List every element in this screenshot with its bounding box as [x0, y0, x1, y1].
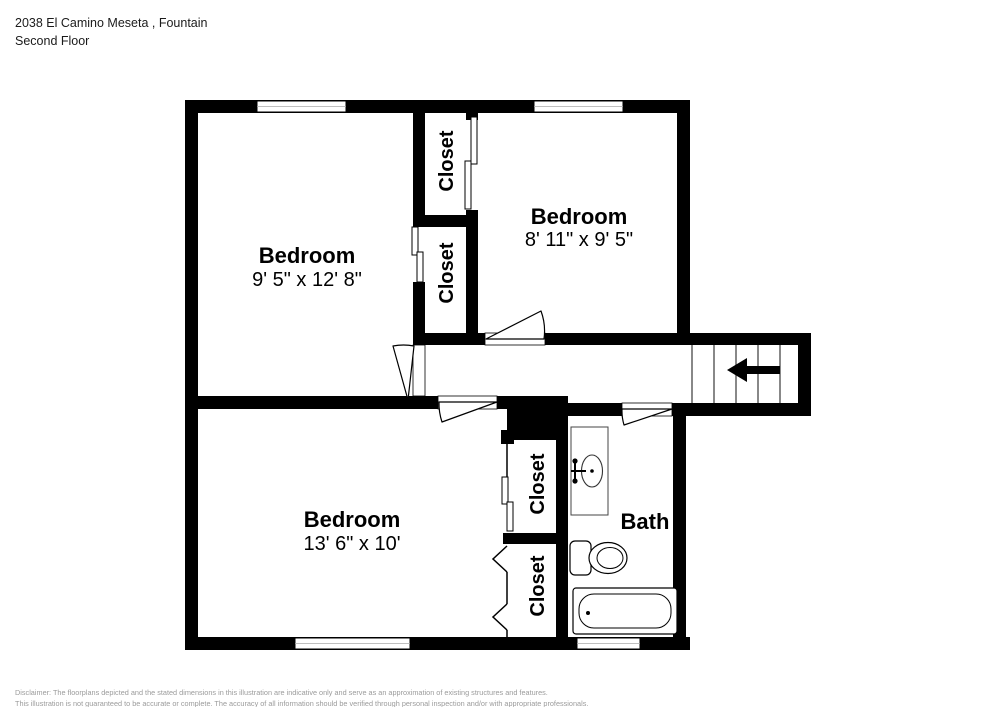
closet-label-top-lower: Closet	[436, 242, 458, 303]
wall-stairs-bottom	[672, 403, 811, 416]
room-label-bath: Bath	[621, 509, 670, 534]
toilet-icon	[570, 541, 627, 575]
wall-bath-top	[545, 403, 622, 416]
window-bedroom3-icon	[295, 638, 410, 649]
door-swing-bedroom1-icon	[393, 345, 414, 400]
room-dims-bedroom3: 13' 6" x 10'	[303, 533, 400, 555]
door-swing-bedroom3-icon	[439, 402, 497, 422]
bathtub-icon	[573, 588, 677, 634]
sliding-door-closetA-icon	[465, 161, 471, 209]
disclaimer-line2: This illustration is not guaranteed to b…	[15, 699, 588, 707]
wall-closetB-left-lower	[413, 282, 425, 345]
walls	[185, 100, 811, 650]
window-bedroom2-icon	[534, 101, 623, 112]
sliding-door-closetB-icon	[417, 252, 423, 282]
window-bedroom1-icon	[257, 101, 346, 112]
wall-closetAB-divider	[413, 215, 478, 227]
closet-sliding-doors	[412, 117, 513, 531]
closet-label-top-upper: Closet	[436, 130, 458, 191]
door-swing-bath-icon	[622, 409, 672, 425]
wall-hall-bottom-mid	[497, 396, 508, 409]
room-label-bedroom1: Bedroom	[259, 243, 356, 268]
wall-stairs-right	[798, 333, 811, 416]
room-label-bedroom3: Bedroom	[304, 507, 401, 532]
wall-outer-left	[185, 100, 198, 650]
closet-label-bottom-upper: Closet	[527, 453, 549, 514]
floorplan-page: 2038 El Camino Meseta , Fountain Second …	[0, 0, 1000, 707]
sliding-door-closetA-icon	[471, 117, 477, 164]
vanity-sink-icon	[571, 427, 608, 515]
closet-bifold-doors	[493, 546, 507, 630]
door-swing-bedroom2-icon	[486, 311, 545, 339]
room-label-bedroom2: Bedroom	[531, 204, 628, 229]
plan-footer: Disclaimer: The floorplans depicted and …	[15, 688, 588, 707]
closet-label-bottom-lower: Closet	[527, 555, 549, 616]
wall-closetB-right	[466, 210, 478, 345]
wall-bath-left	[556, 430, 568, 650]
stairs-direction-arrow-icon	[727, 358, 780, 382]
disclaimer-line1: Disclaimer: The floorplans depicted and …	[15, 688, 588, 699]
sliding-door-closetC-icon	[502, 477, 508, 504]
room-dims-bedroom1: 9' 5" x 12' 8"	[252, 269, 362, 291]
bifold-door-closetD-icon	[493, 546, 507, 572]
wall-bedroom2-right	[677, 100, 690, 345]
window-bath-icon	[577, 638, 640, 649]
floorplan-drawing: Bedroom 9' 5" x 12' 8" Bedroom 8' 11" x …	[0, 0, 1000, 707]
opening-bedroom1	[413, 345, 425, 396]
staircase	[692, 345, 780, 403]
sliding-door-closetB-icon	[412, 227, 418, 255]
wall-closetC-top-stub	[501, 430, 514, 444]
bifold-door-closetD-icon	[493, 604, 507, 630]
wall-hall-bottom-left	[185, 396, 438, 409]
sliding-door-closetC-icon	[507, 502, 513, 531]
wall-hall-top-right	[545, 333, 811, 345]
room-dims-bedroom2: 8' 11" x 9' 5"	[525, 229, 633, 251]
wall-closetA-left-upper	[413, 100, 425, 218]
